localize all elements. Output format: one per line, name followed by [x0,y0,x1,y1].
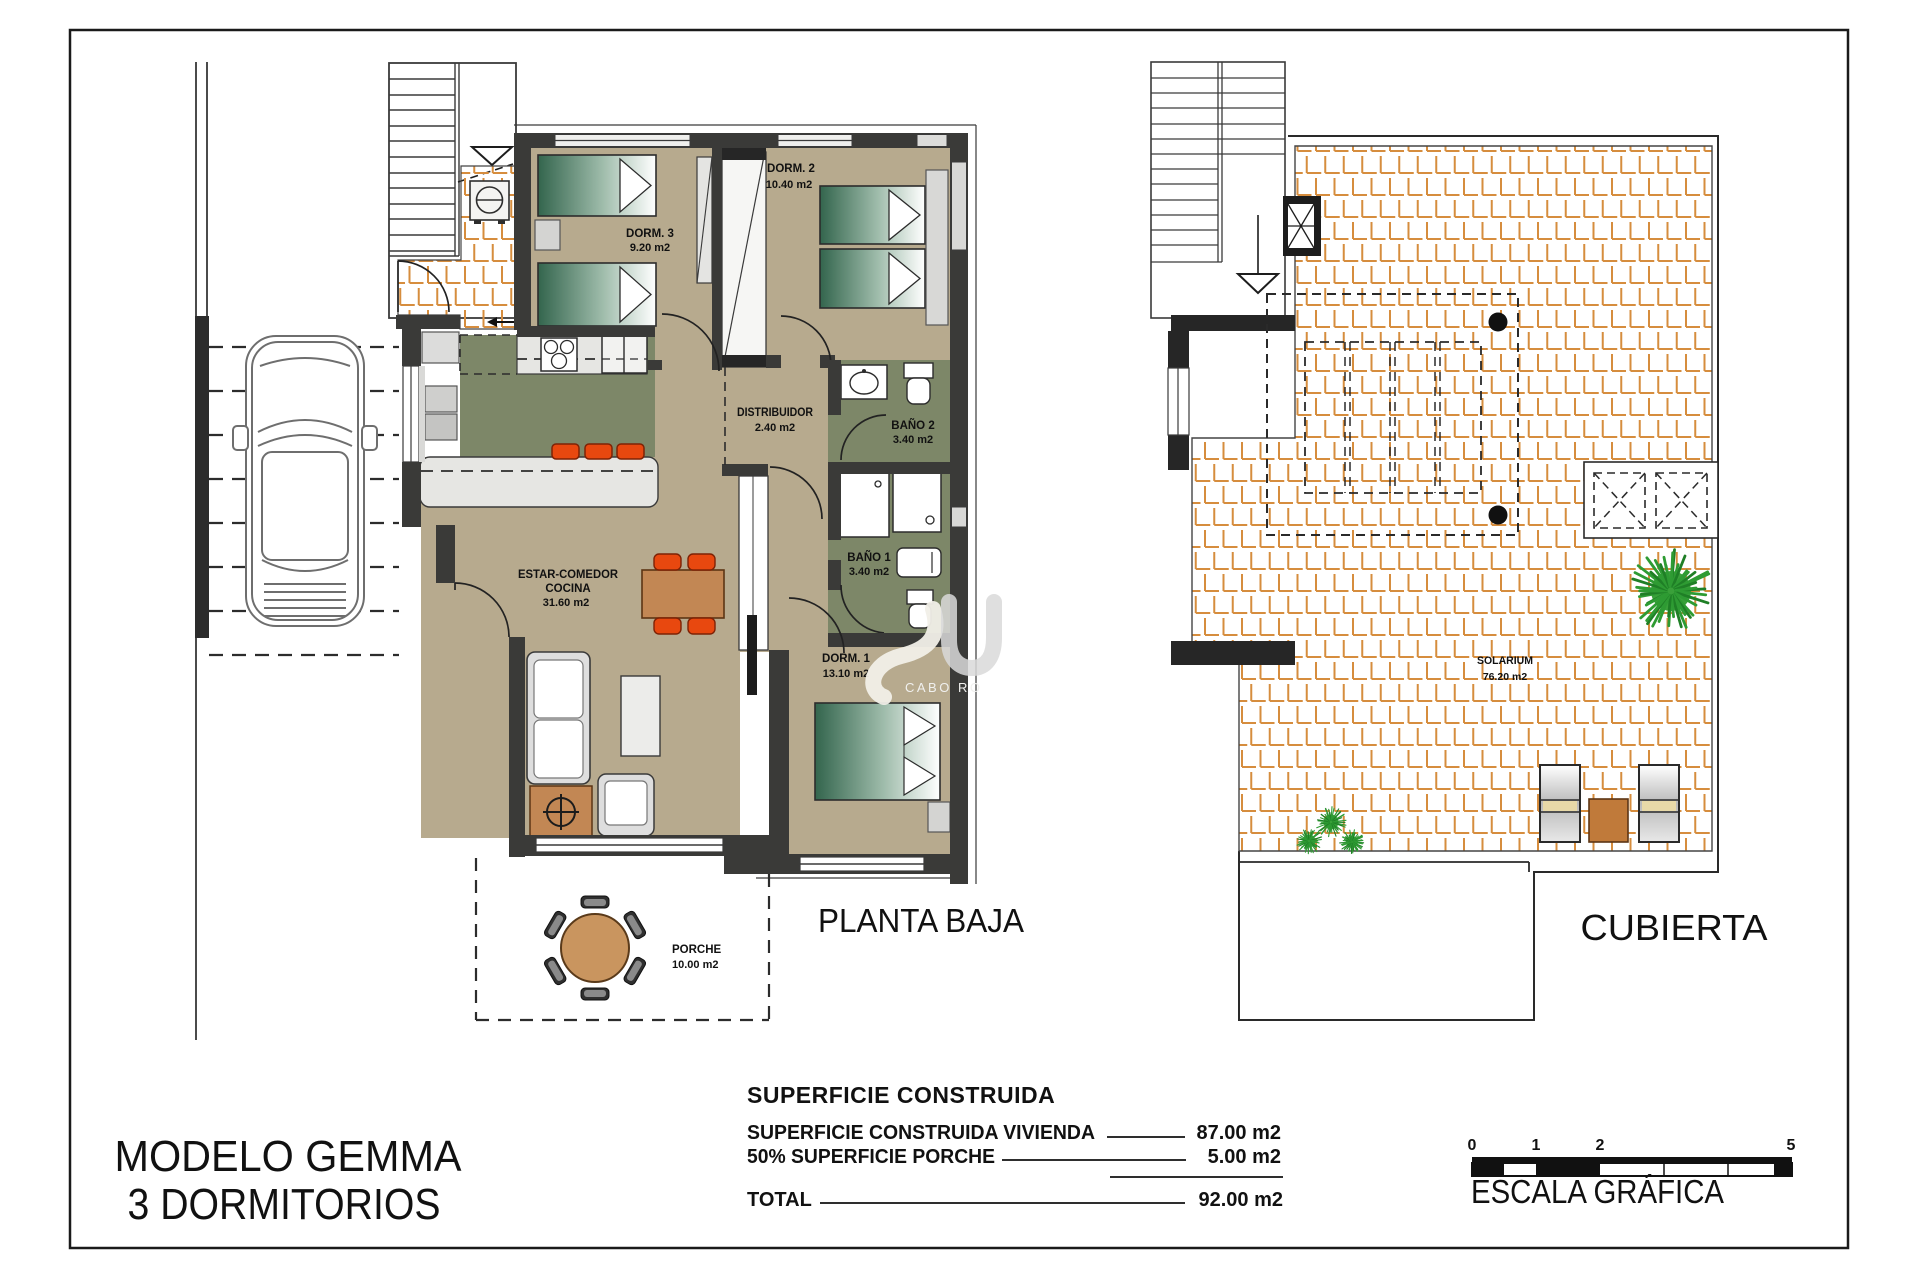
svg-text:3 DORMITORIOS: 3 DORMITORIOS [128,1180,441,1229]
svg-text:SUPERFICIE CONSTRUIDA VIVIENDA: SUPERFICIE CONSTRUIDA VIVIENDA [747,1122,1095,1144]
svg-text:3.40 m2: 3.40 m2 [893,434,933,446]
svg-text:5: 5 [1787,1137,1796,1154]
svg-text:9.20 m2: 9.20 m2 [630,242,670,254]
svg-text:2.40 m2: 2.40 m2 [755,422,795,434]
svg-text:ESTAR-COMEDOR: ESTAR-COMEDOR [518,569,619,581]
svg-text:MODELO GEMMA: MODELO GEMMA [115,1132,463,1181]
svg-text:TOTAL: TOTAL [747,1189,812,1211]
svg-text:PLANTA BAJA: PLANTA BAJA [818,902,1024,939]
svg-text:ESCALA GRÁFICA: ESCALA GRÁFICA [1471,1173,1724,1210]
svg-text:DORM. 1: DORM. 1 [822,653,871,665]
svg-text:76.20 m2: 76.20 m2 [1483,671,1528,683]
svg-text:92.00 m2: 92.00 m2 [1198,1189,1283,1211]
svg-text:BAÑO 2: BAÑO 2 [891,419,934,432]
svg-text:10.40 m2: 10.40 m2 [766,179,812,191]
svg-text:13.10 m2: 13.10 m2 [823,668,869,680]
svg-text:COCINA: COCINA [545,583,590,595]
svg-text:31.60 m2: 31.60 m2 [543,597,589,609]
svg-text:10.00 m2: 10.00 m2 [672,959,718,971]
svg-text:DORM. 2: DORM. 2 [767,163,815,175]
svg-text:DORM. 3: DORM. 3 [626,228,674,240]
svg-text:1: 1 [1532,1137,1541,1154]
svg-text:BAÑO 1: BAÑO 1 [847,551,891,564]
svg-text:SOLARIUM: SOLARIUM [1477,655,1533,667]
svg-text:3.40 m2: 3.40 m2 [849,566,889,578]
svg-text:5.00 m2: 5.00 m2 [1208,1146,1281,1168]
svg-text:CUBIERTA: CUBIERTA [1581,907,1768,948]
svg-text:DISTRIBUIDOR: DISTRIBUIDOR [737,407,814,419]
svg-text:SUPERFICIE CONSTRUIDA: SUPERFICIE CONSTRUIDA [747,1082,1055,1108]
svg-text:87.00 m2: 87.00 m2 [1196,1122,1281,1144]
svg-text:50% SUPERFICIE PORCHE: 50% SUPERFICIE PORCHE [747,1146,995,1168]
svg-text:0: 0 [1468,1137,1477,1154]
svg-text:PORCHE: PORCHE [672,944,722,956]
svg-text:CABO RO: CABO RO [905,680,982,695]
svg-text:2: 2 [1596,1137,1605,1154]
